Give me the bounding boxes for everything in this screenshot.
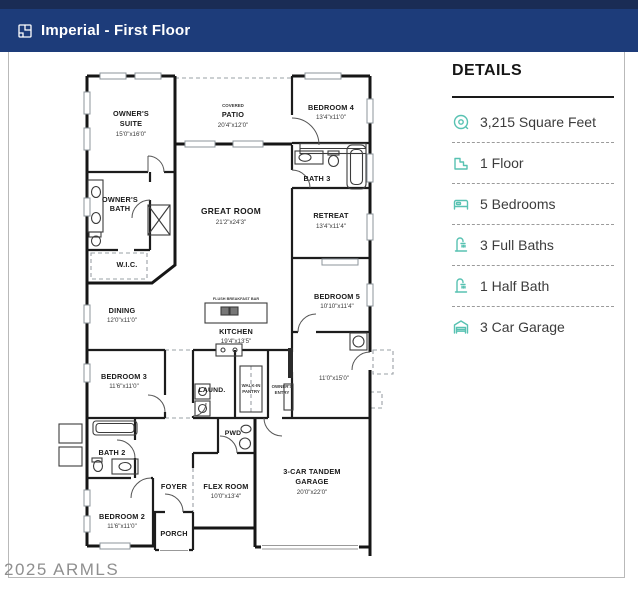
room-dim-dining: 12'0"x11'0" [107,317,137,324]
room-label-bedroom4: BEDROOM 4 [308,103,355,112]
room-label-wic: W.I.C. [116,260,137,269]
room-dim-bedroom4: 13'4"x11'0" [316,114,346,121]
room-label-laundry: LAUND. [199,387,226,394]
room-label-kitchen: KITCHEN [219,327,253,336]
room-label-owners-bath: OWNER'S [102,195,138,204]
room-dim-flex: 10'0"x13'4" [211,493,242,500]
garage-icon [452,318,470,336]
room-dim-owners-suite: 15'0"x16'0" [116,131,147,138]
half-bath-icon [452,277,470,295]
room-dim-garage: 20'0"x22'0" [297,489,328,496]
room-label-pwd: PWD [225,430,241,437]
detail-item-half-baths: 1 Half Bath [452,266,614,306]
detail-item-garage: 3 Car Garage [452,307,614,347]
room-label-pantry-2: PANTRY [242,389,260,394]
room-label-bedroom5: BEDROOM 5 [314,292,360,301]
room-dim-bedroom5: 10'10"x11'4" [320,303,353,310]
room-dim-hall: 11'0"x15'0" [319,375,349,382]
room-label-porch: PORCH [160,529,187,538]
area-icon [452,113,470,131]
label-breakfast-bar: FLUSH BREAKFAST BAR [213,297,259,301]
watermark: 2025 ARMLS [4,560,119,580]
room-label-owners-suite: OWNER'S [113,109,149,118]
room-label-great-room: GREAT ROOM [201,206,261,216]
room-label-owners-suite-2: SUITE [120,119,143,128]
page: Imperial - First Floor [0,0,638,600]
room-dim-bedroom2: 11'6"x11'0" [107,523,137,530]
detail-item-square-feet: 3,215 Square Feet [452,102,614,142]
room-dim-bedroom3: 11'6"x11'0" [109,383,139,390]
room-label-foyer: FOYER [161,482,188,491]
detail-item-label: 3 Full Baths [480,237,554,253]
room-label-patio-sub: COVERED [222,103,244,108]
detail-item-label: 3,215 Square Feet [480,114,596,130]
full-bath-icon [452,236,470,254]
details-title: DETAILS [452,62,614,80]
room-dim-kitchen: 19'4"x13'5" [221,338,252,345]
room-label-bath2: BATH 2 [98,448,125,457]
room-label-bedroom2: BEDROOM 2 [99,512,145,521]
room-label-retreat: RETREAT [313,211,349,220]
room-label-owners-bath-2: BATH [110,204,131,213]
detail-item-label: 5 Bedrooms [480,196,555,212]
detail-item-label: 1 Floor [480,155,524,171]
floor-icon [452,154,470,172]
room-label-owners-entry-2: ENTRY [275,390,290,395]
room-label-bath3: BATH 3 [303,174,330,183]
room-label-patio: PATIO [222,110,244,119]
detail-item-label: 3 Car Garage [480,319,565,335]
room-label-bedroom3: BEDROOM 3 [101,372,147,381]
room-label-flex: FLEX ROOM [203,482,248,491]
room-dim-great-room: 21'2"x24'3" [216,219,247,226]
bed-icon [452,195,470,213]
detail-item-label: 1 Half Bath [480,278,549,294]
room-dim-patio: 20'4"x12'0" [218,122,249,129]
room-label-garage-2: GARAGE [295,477,328,486]
details-underline [452,96,614,98]
room-dim-retreat: 13'4"x11'4" [316,223,346,230]
details-panel: DETAILS 3,215 Square Feet 1 Floor [452,62,614,347]
detail-item-floors: 1 Floor [452,143,614,183]
detail-item-bedrooms: 5 Bedrooms [452,184,614,224]
detail-item-full-baths: 3 Full Baths [452,225,614,265]
room-label-garage: 3-CAR TANDEM [283,467,340,476]
room-label-dining: DINING [109,306,136,315]
room-label-pantry: WALK-IN [242,383,261,388]
room-label-owners-entry: OWNER'S [272,384,293,389]
